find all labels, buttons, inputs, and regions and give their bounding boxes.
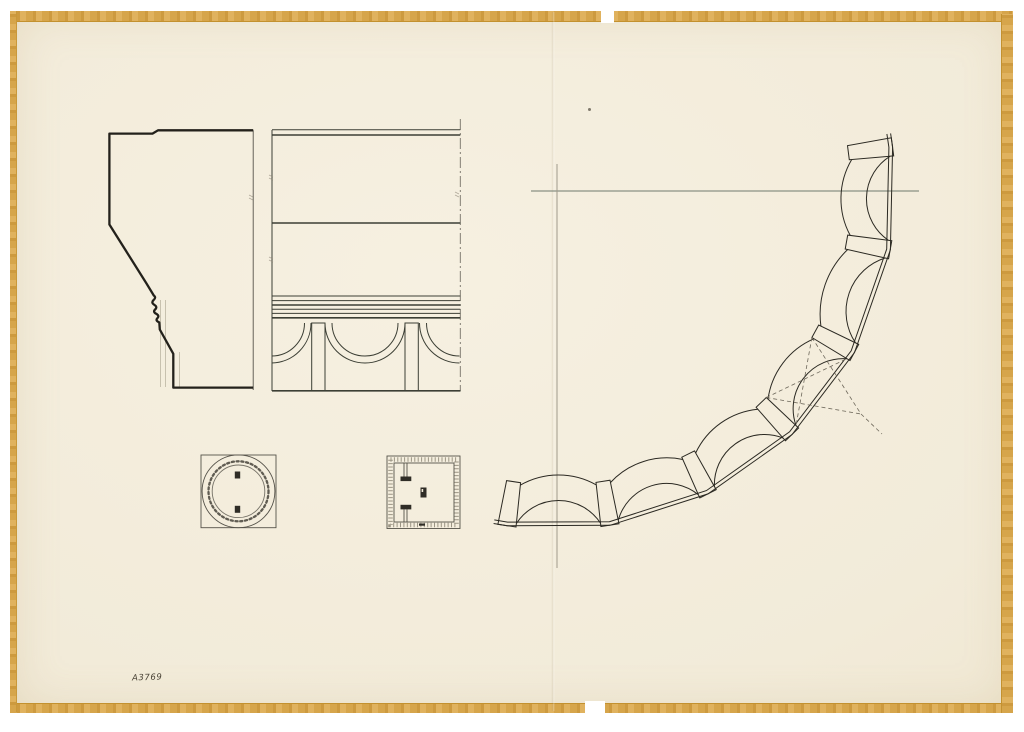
hemicycle-plan-drawing [494,133,894,527]
entablature-elevation-drawing [249,119,461,391]
square-plan-detail [387,456,460,529]
scanned-drawing-frame: A3769 [0,0,1024,732]
axis-lines [531,164,919,568]
cornice-profile-drawing [109,130,253,390]
circular-plan-detail [201,455,276,528]
architectural-drawing-svg [0,0,1024,732]
inventory-number: A3769 [132,672,163,683]
